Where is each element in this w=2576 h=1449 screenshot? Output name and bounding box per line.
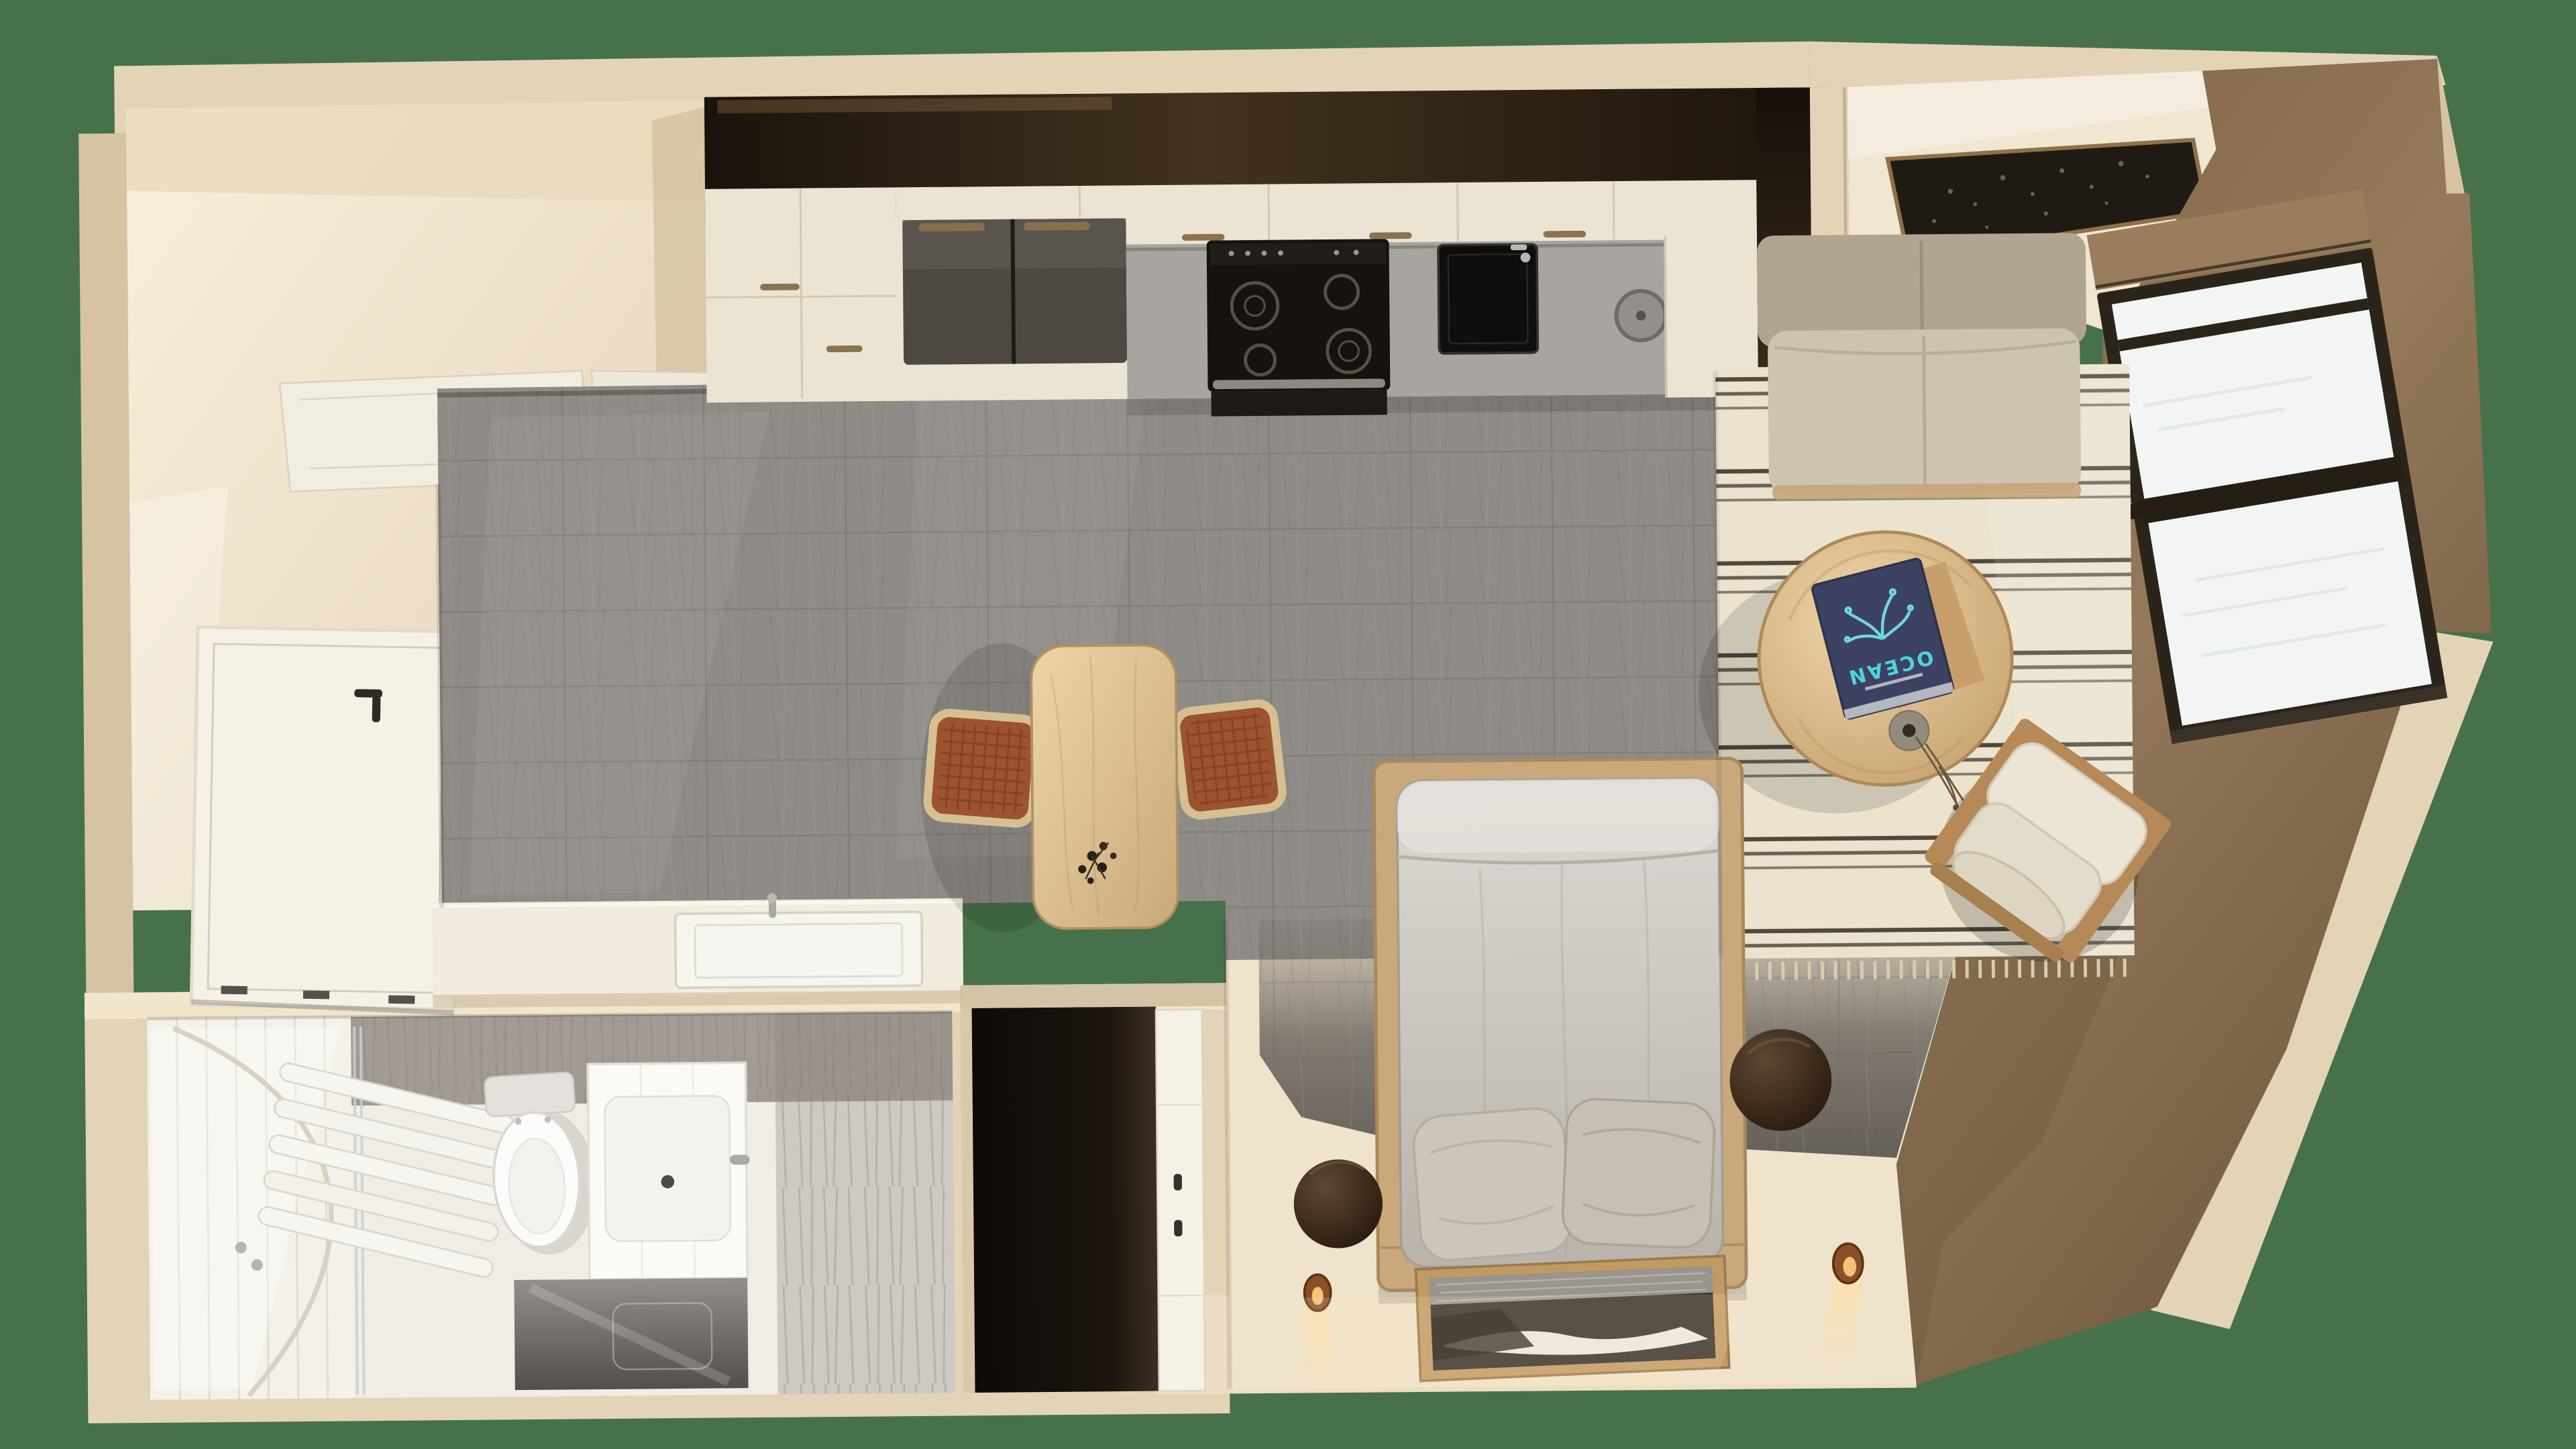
sofa xyxy=(1757,233,2088,500)
drain xyxy=(661,1175,674,1189)
cooking-pot xyxy=(1616,290,1666,340)
oven-handle xyxy=(1213,378,1385,389)
vanity-faucet-icon xyxy=(730,1155,750,1165)
closet-door xyxy=(1156,1010,1205,1391)
closet-niche xyxy=(960,983,1230,1393)
pouf-right xyxy=(1729,1028,1832,1131)
dining-table xyxy=(1031,645,1178,928)
peninsula-counter xyxy=(432,892,963,1008)
vanity-sink xyxy=(588,1063,751,1279)
pouf-left xyxy=(1293,1159,1383,1248)
apartment: OCEAN xyxy=(76,36,2500,1424)
pillow-left xyxy=(1411,1106,1574,1263)
kitchen-sink xyxy=(1438,244,1538,354)
dining-chair-left xyxy=(926,712,1040,825)
floor-plan-render: OCEAN xyxy=(0,0,2576,1449)
bathroom xyxy=(147,1012,955,1400)
stove xyxy=(1207,239,1391,416)
kitchen xyxy=(704,87,1851,421)
counter-sink xyxy=(676,912,922,987)
pillow-right xyxy=(1562,1098,1716,1249)
fridge xyxy=(902,218,1127,364)
dining-chair-right xyxy=(1174,702,1284,817)
sheet-fold xyxy=(1397,778,1719,853)
entry-door xyxy=(191,627,461,1013)
sofa-base xyxy=(1772,482,2082,500)
vase xyxy=(1889,710,1929,750)
pantry-cabinet xyxy=(705,187,898,399)
